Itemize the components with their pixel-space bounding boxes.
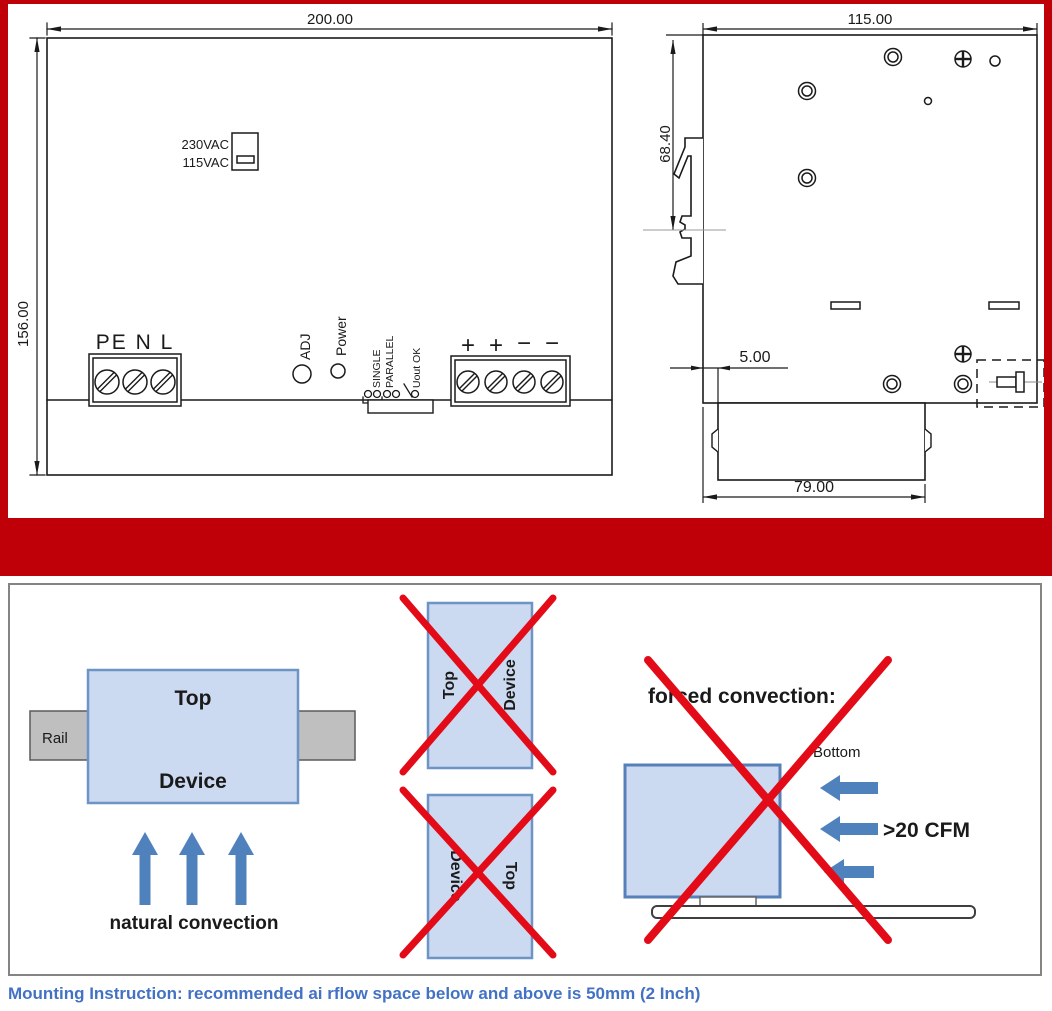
output-terminal-block[interactable]	[451, 356, 570, 406]
vent-slot	[831, 302, 860, 309]
terminal-screw	[541, 371, 563, 393]
left-arrow	[820, 775, 878, 801]
cfm-label: >20 CFM	[883, 819, 970, 842]
voltage-low-label: 115VAC	[183, 155, 230, 170]
output-terminal-label: −	[545, 330, 559, 357]
small-hole	[925, 98, 932, 105]
dim-79-label: 79.00	[794, 479, 834, 496]
device-foot	[700, 897, 756, 906]
voltage-selector[interactable]	[232, 133, 258, 170]
adj-label: ADJ	[297, 334, 313, 360]
screw-head	[1016, 372, 1024, 392]
output-terminal-label: +	[461, 332, 475, 359]
side-outline	[703, 35, 1037, 403]
input-terminals-label: PE N L	[96, 331, 175, 354]
drawing-area: 200.00 156.00	[8, 4, 1044, 518]
rivet-hole	[799, 83, 816, 100]
round-hole	[990, 56, 1000, 66]
voltage-slider	[237, 156, 254, 163]
mounting-instruction-panel: Rail Top Device natural convection Top D…	[8, 583, 1042, 976]
rivet-hole	[955, 376, 972, 393]
up-arrow	[179, 832, 205, 905]
rivet-hole	[884, 376, 901, 393]
power-led	[331, 364, 345, 378]
rivet-hole	[885, 49, 902, 66]
cover-latch	[925, 429, 931, 452]
forced-convection-diagram: forced convection: Bottom >20 CFM	[625, 660, 975, 940]
uout-ok-label: Uout OK	[411, 348, 423, 388]
terminal-cover	[718, 403, 925, 480]
terminal-screw	[95, 370, 119, 394]
screw-body	[997, 377, 1016, 387]
invalid-orientation-2: Device Top	[403, 790, 553, 958]
up-arrow	[228, 832, 254, 905]
shelf	[652, 906, 975, 918]
power-label: Power	[333, 316, 349, 356]
vent-slot	[989, 302, 1019, 309]
dim-115-label: 115.00	[848, 11, 893, 28]
dim-68-label: 68.40	[657, 125, 674, 163]
cover-latch	[712, 429, 718, 452]
terminal-screw	[151, 370, 175, 394]
invalid-orientation-1: Top Device	[403, 598, 553, 772]
output-terminal-label: +	[489, 332, 503, 359]
jumper-connector	[368, 400, 433, 413]
terminal-screw	[123, 370, 147, 394]
phillips-screw	[955, 346, 971, 362]
terminal-screw	[485, 371, 507, 393]
device-name-label: Device	[159, 770, 227, 793]
natural-convection-diagram: Rail Top Device natural convection	[30, 670, 355, 934]
output-terminal-label: −	[517, 330, 531, 357]
dim-156-label: 156.00	[15, 301, 32, 347]
mounting-caption: Mounting Instruction: recommended ai rfl…	[8, 984, 1044, 1004]
adj-pot[interactable]	[293, 365, 311, 383]
terminal-screw	[513, 371, 535, 393]
phillips-screw	[955, 51, 971, 67]
red-frame: 200.00 156.00	[0, 0, 1052, 576]
terminal-screw	[457, 371, 479, 393]
front-view: 200.00 156.00	[15, 11, 612, 475]
bottom-label: Bottom	[813, 744, 861, 761]
device-top-label: Top	[175, 687, 212, 710]
technical-drawing-svg: 200.00 156.00	[8, 4, 1044, 518]
mounting-svg: Rail Top Device natural convection Top D…	[10, 585, 1040, 974]
input-terminal-block[interactable]	[89, 354, 181, 406]
mechanical-drawing-page: 200.00 156.00	[0, 0, 1052, 1011]
device-name-label: Device	[502, 659, 519, 711]
voltage-high-label: 230VAC	[182, 137, 229, 152]
parallel-label: PARALLEL	[384, 336, 396, 388]
up-arrow	[132, 832, 158, 905]
device-top-label: Top	[441, 671, 458, 699]
dim-5-label: 5.00	[739, 349, 770, 366]
rail-label: Rail	[42, 730, 68, 747]
left-arrow	[820, 816, 878, 842]
din-rail-clip[interactable]	[673, 138, 703, 284]
single-label: SINGLE	[371, 349, 383, 388]
natural-convection-label: natural convection	[110, 913, 279, 934]
dim-200-label: 200.00	[307, 11, 353, 28]
side-view: 115.00 68.40	[643, 11, 1044, 503]
convection-up-arrows	[132, 832, 254, 905]
device-top-label: Top	[502, 862, 519, 890]
dim-156	[30, 38, 45, 475]
front-outline	[47, 38, 612, 475]
rivet-hole	[799, 170, 816, 187]
